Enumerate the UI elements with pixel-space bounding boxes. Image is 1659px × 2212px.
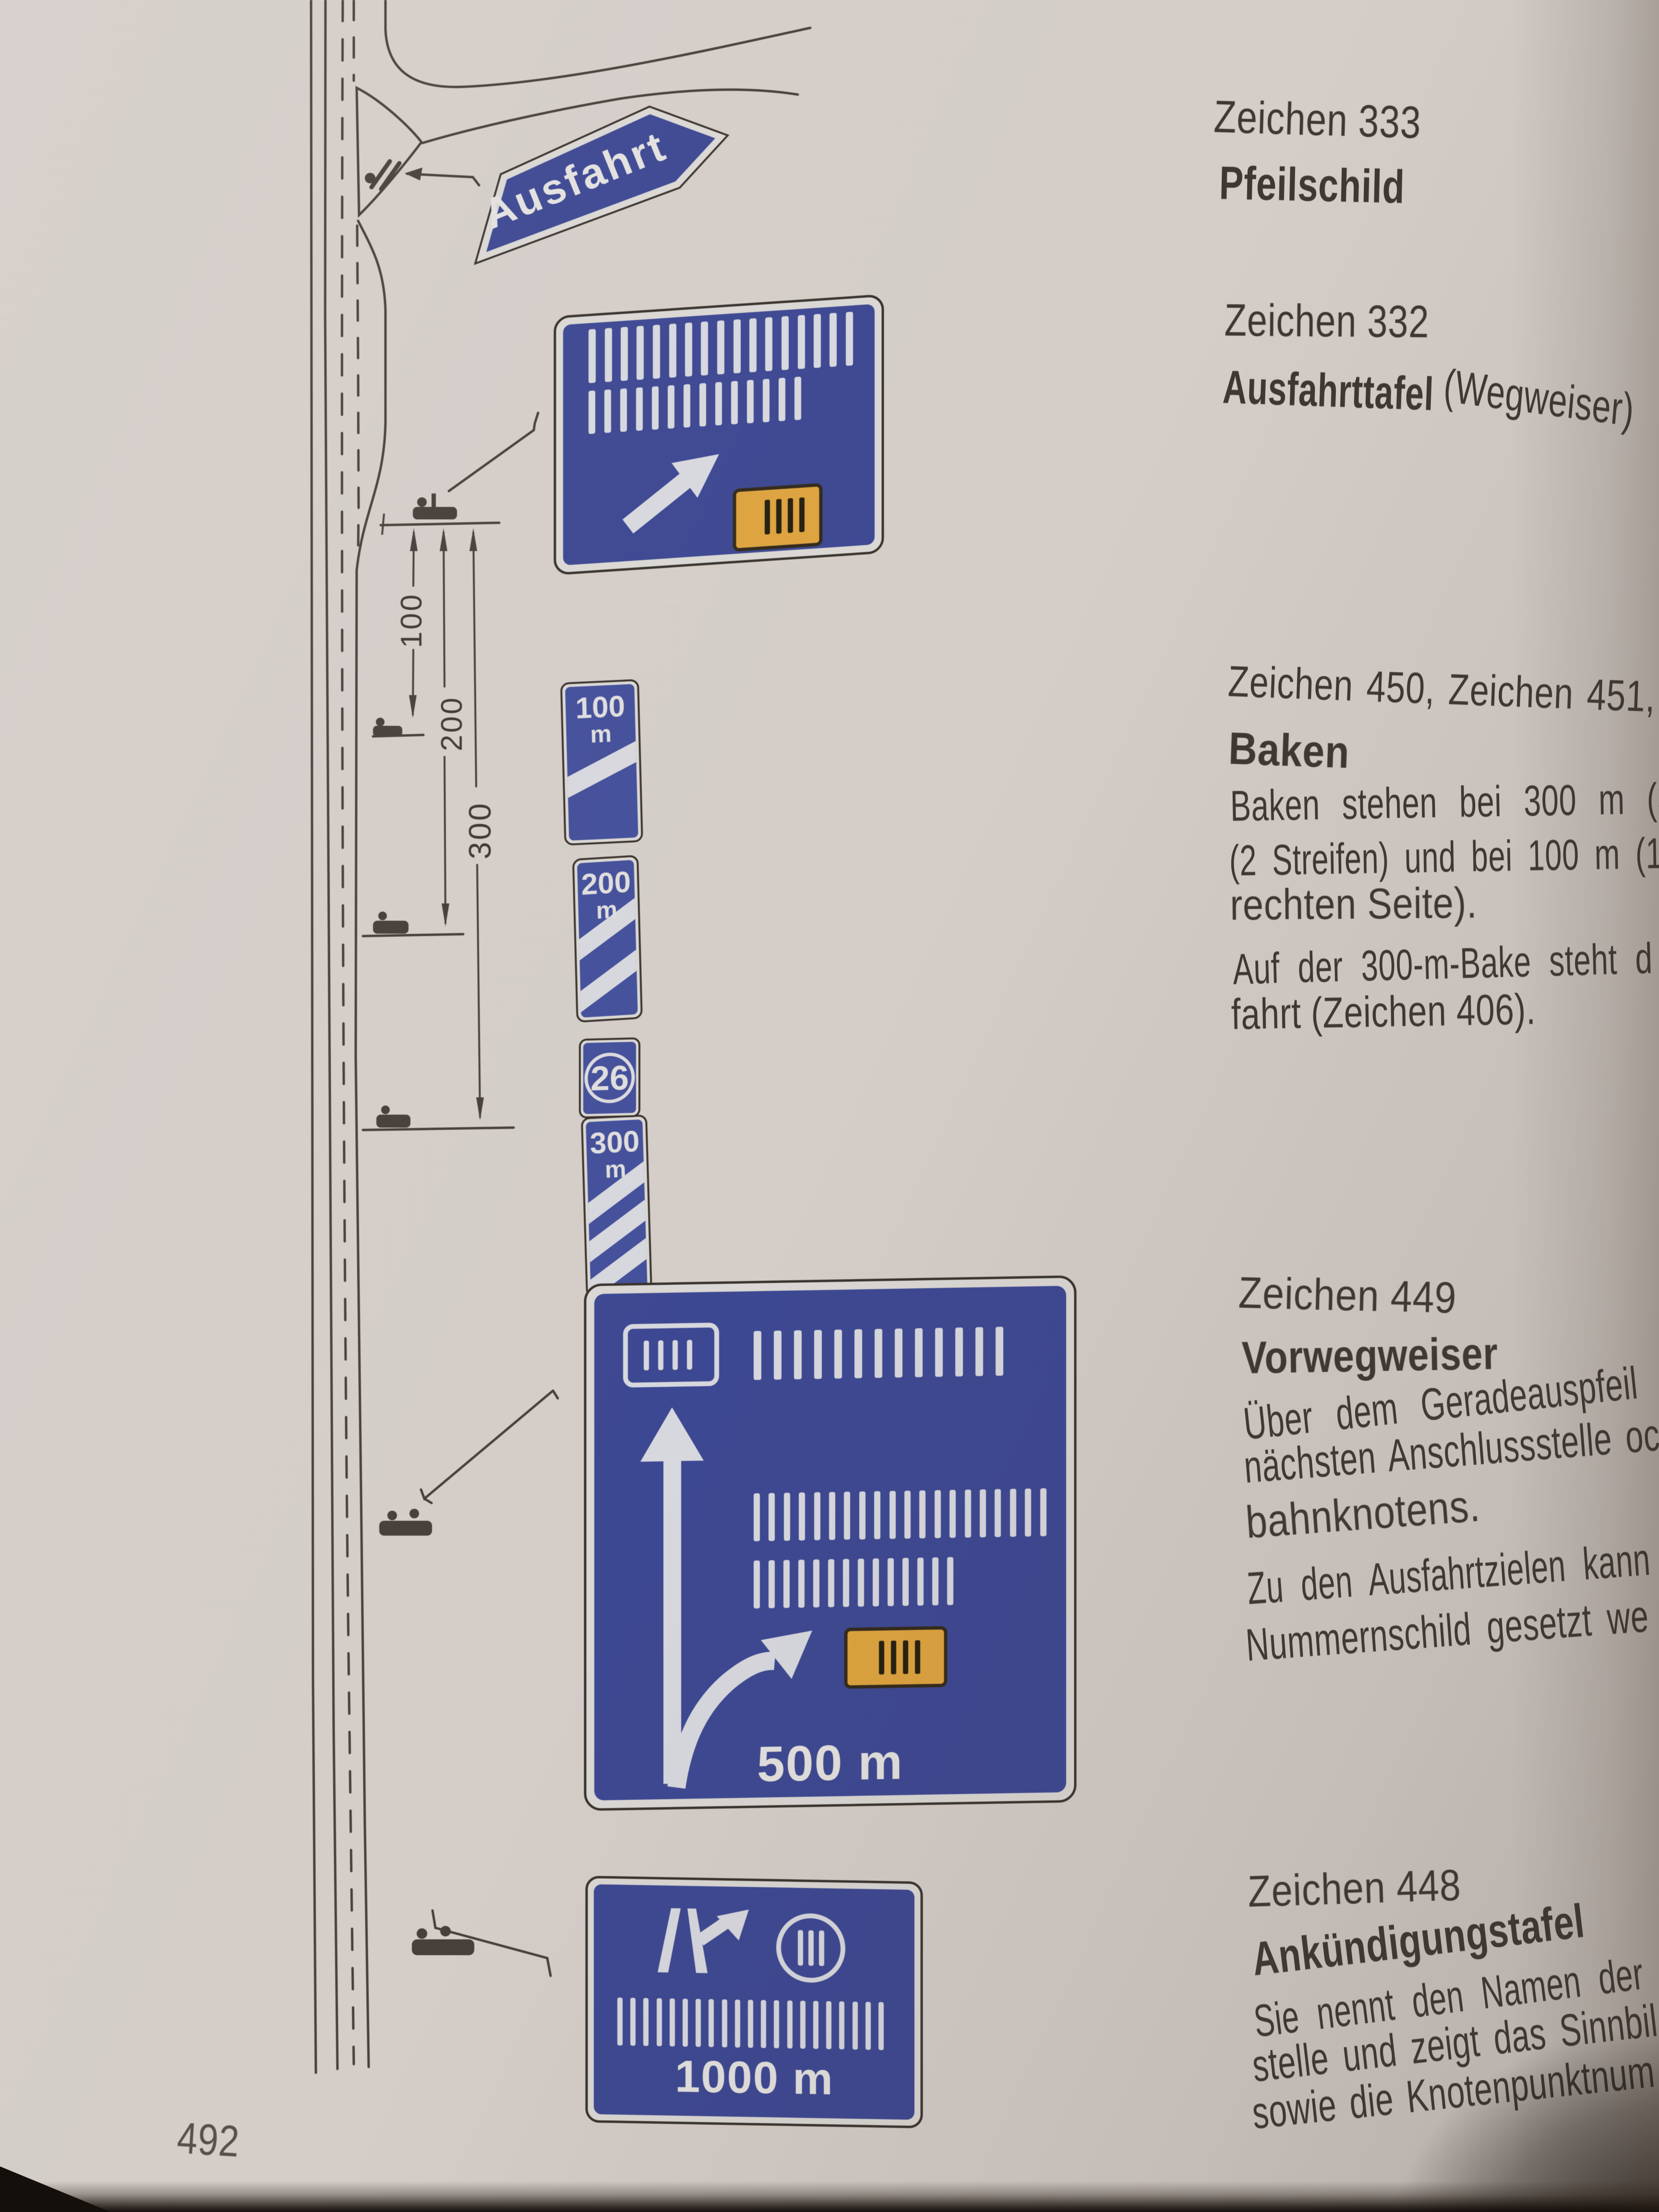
svg-text:26: 26 bbox=[590, 1059, 629, 1098]
svg-text:200: 200 bbox=[435, 696, 469, 751]
svg-text:m: m bbox=[596, 896, 618, 924]
svg-text:300: 300 bbox=[589, 1125, 640, 1160]
svg-text:m: m bbox=[604, 1155, 626, 1183]
svg-text:100: 100 bbox=[395, 593, 428, 648]
svg-text:m: m bbox=[590, 720, 612, 748]
svg-text:500 m: 500 m bbox=[757, 1734, 903, 1792]
svg-text:100: 100 bbox=[575, 690, 625, 725]
svg-text:1000 m: 1000 m bbox=[675, 2051, 834, 2104]
svg-text:300: 300 bbox=[462, 802, 497, 859]
svg-text:200: 200 bbox=[581, 866, 631, 902]
